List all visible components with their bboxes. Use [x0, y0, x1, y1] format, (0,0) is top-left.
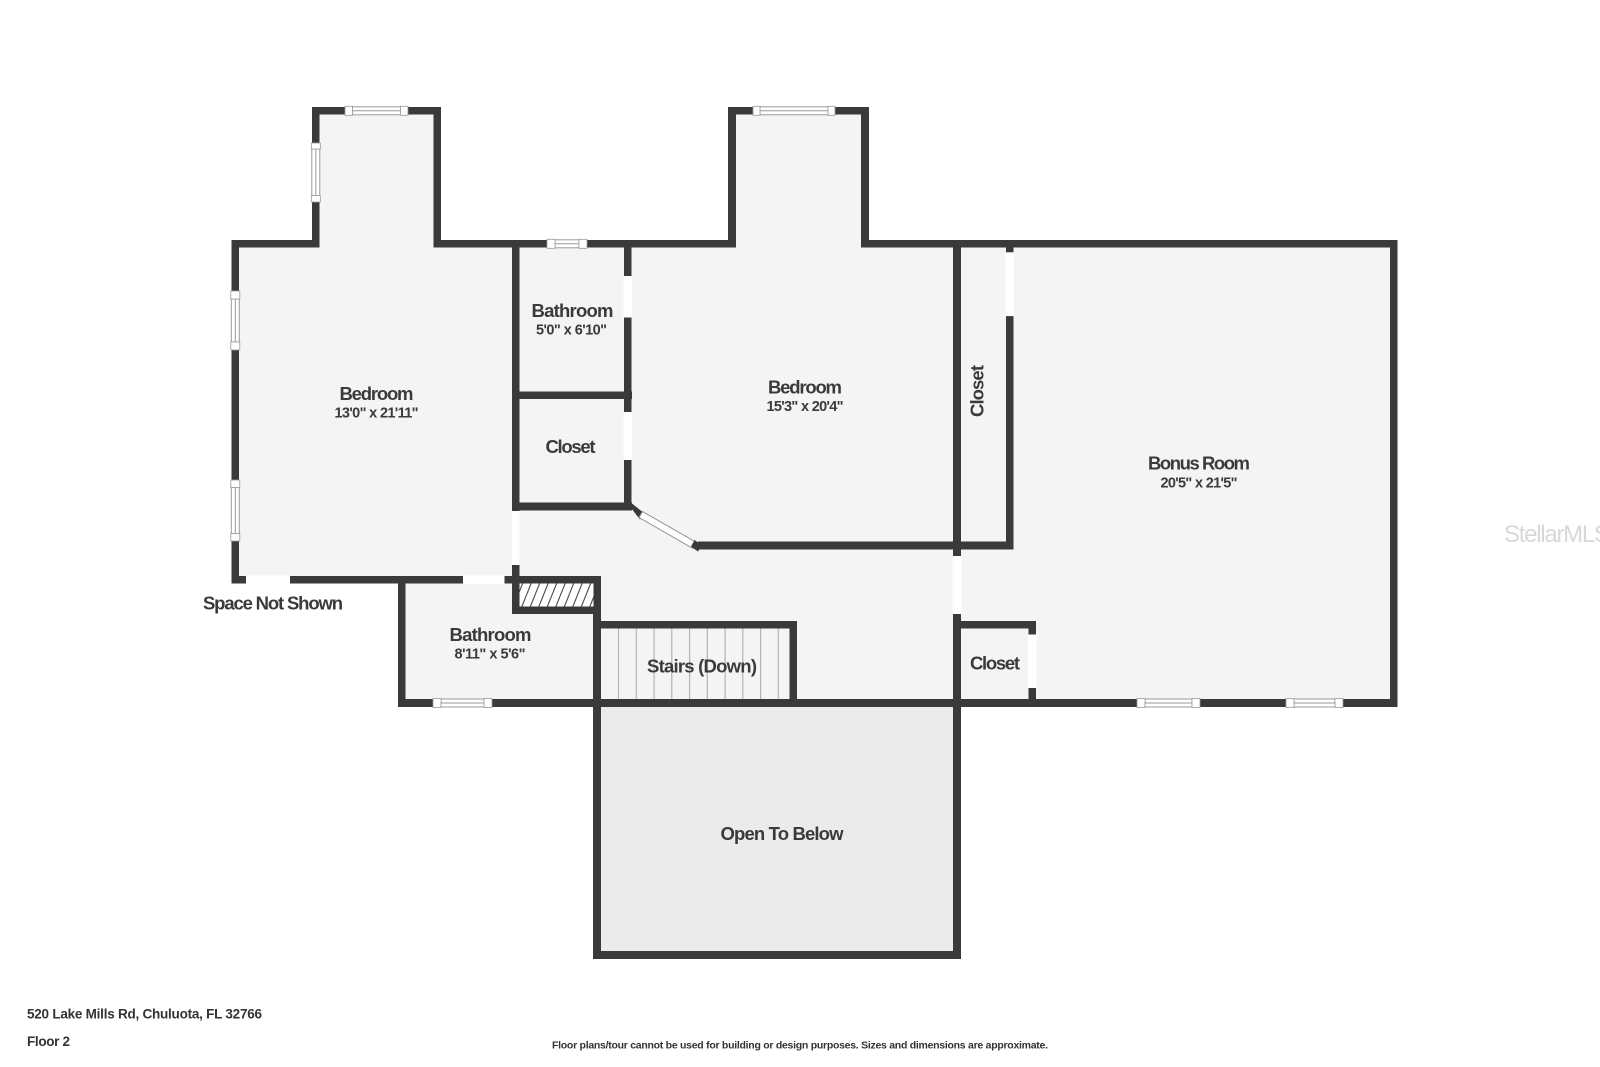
svg-text:13'0" x 21'11": 13'0" x 21'11" [335, 406, 419, 422]
svg-text:20'5" x 21'5": 20'5" x 21'5" [1161, 476, 1238, 492]
svg-text:Bonus Room: Bonus Room [1148, 453, 1250, 474]
svg-text:Stairs (Down): Stairs (Down) [647, 656, 757, 677]
svg-text:Closet: Closet [546, 436, 596, 457]
svg-text:8'11" x 5'6": 8'11" x 5'6" [455, 647, 526, 663]
svg-text:Floor 2: Floor 2 [27, 1034, 70, 1049]
svg-text:Space Not Shown: Space Not Shown [203, 593, 343, 614]
svg-text:Closet: Closet [967, 365, 988, 417]
svg-text:5'0" x 6'10": 5'0" x 6'10" [536, 323, 607, 339]
svg-text:Open To Below: Open To Below [721, 823, 845, 844]
svg-text:Bedroom: Bedroom [340, 383, 414, 404]
svg-text:StellarMLS: StellarMLS [1504, 521, 1600, 548]
svg-text:Closet: Closet [970, 653, 1020, 674]
svg-text:Bedroom: Bedroom [768, 377, 842, 398]
svg-text:Bathroom: Bathroom [450, 624, 532, 645]
svg-text:520 Lake Mills Rd, Chuluota, F: 520 Lake Mills Rd, Chuluota, FL 32766 [27, 1007, 262, 1022]
svg-text:Floor plans/tour cannot be use: Floor plans/tour cannot be used for buil… [552, 1040, 1048, 1052]
svg-text:Bathroom: Bathroom [532, 300, 614, 321]
svg-text:15'3" x 20'4": 15'3" x 20'4" [767, 399, 844, 415]
